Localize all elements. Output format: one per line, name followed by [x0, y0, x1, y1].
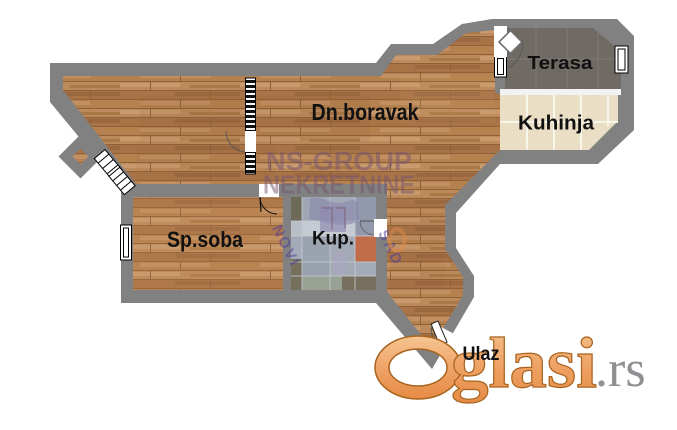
svg-text:Kup.: Kup. [312, 229, 354, 250]
svg-text:NEKRETNINE: NEKRETNINE [263, 170, 415, 200]
svg-text:Ulaz: Ulaz [463, 344, 500, 365]
svg-text:Dn.boravak: Dn.boravak [312, 99, 419, 125]
svg-text:Terasa: Terasa [528, 53, 594, 73]
svg-text:Kuhinja: Kuhinja [518, 113, 595, 135]
svg-text:Sp.soba: Sp.soba [167, 227, 244, 252]
svg-text:.rs: .rs [595, 341, 646, 398]
